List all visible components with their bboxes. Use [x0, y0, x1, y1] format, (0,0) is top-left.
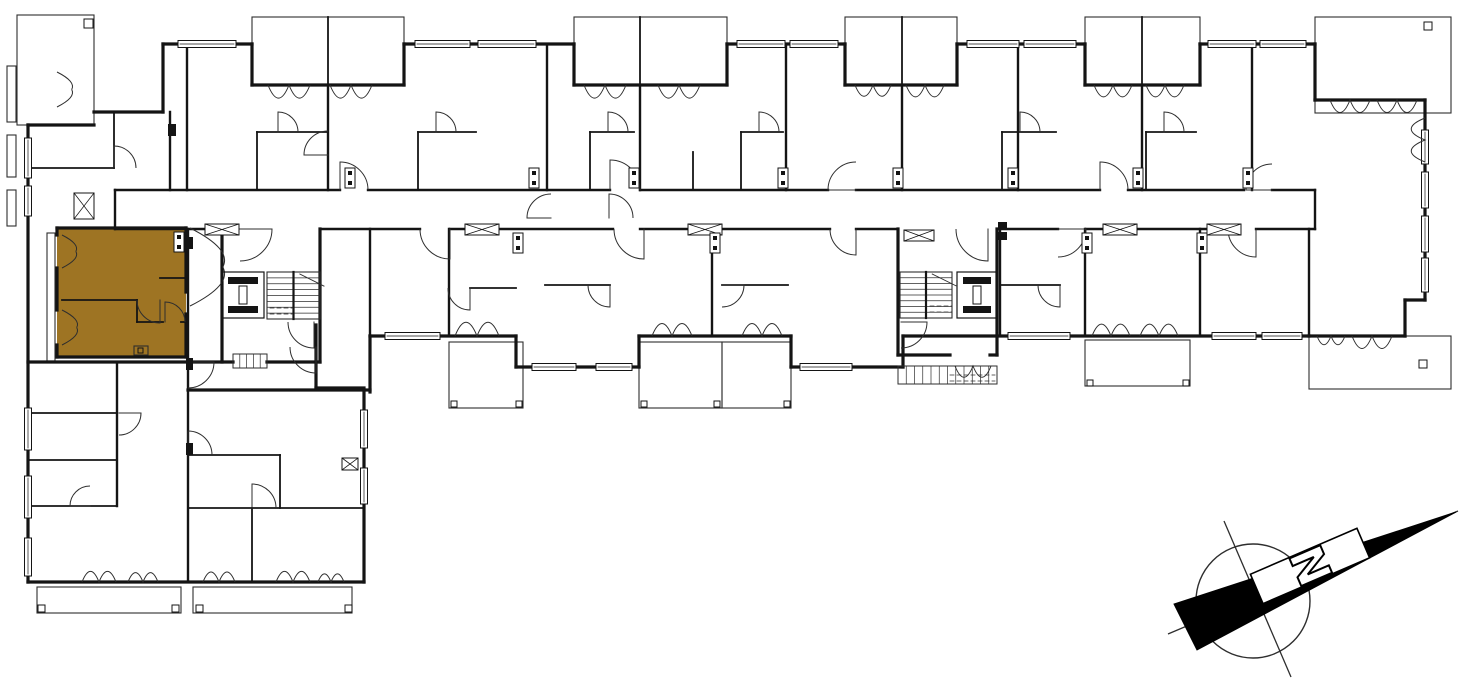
- balcony-door-swing: [658, 85, 700, 98]
- marker-square: [345, 605, 352, 612]
- door-frame-dot: [532, 171, 536, 175]
- door-frame-dot: [632, 181, 636, 185]
- plan-layers: [7, 15, 1451, 613]
- balcony-door-swing: [330, 85, 372, 98]
- marker-square: [451, 401, 457, 407]
- door-stop: [998, 232, 1007, 240]
- door-frame-dot: [516, 246, 520, 250]
- casement-swing: [57, 90, 73, 108]
- door-arc: [114, 146, 136, 168]
- door-frame-dot: [1246, 181, 1250, 185]
- door-arc: [608, 112, 628, 132]
- door-frame-dot: [713, 236, 717, 240]
- entrance-steps: [233, 354, 267, 368]
- balcony-outline: [1309, 336, 1451, 389]
- door-arc: [288, 322, 314, 348]
- walls-layer: [28, 17, 1425, 582]
- balcony-outline: [845, 17, 957, 85]
- door-arc: [448, 288, 470, 310]
- door-arc: [1164, 112, 1184, 132]
- door-arc: [1038, 285, 1060, 307]
- door-stop: [186, 443, 193, 455]
- balcony-door-swing: [1140, 324, 1178, 336]
- screenshot-root: N: [0, 0, 1465, 692]
- marker-square: [714, 401, 720, 407]
- balcony-outline: [449, 342, 523, 408]
- door-arc: [722, 285, 744, 307]
- floor-plan: N: [0, 0, 1465, 692]
- door-frame-dot: [348, 181, 352, 185]
- door-frame-dot: [348, 171, 352, 175]
- marker-square: [196, 605, 203, 612]
- balcony-outline: [7, 190, 16, 226]
- marker-square: [38, 605, 45, 612]
- door-frame-dot: [516, 236, 520, 240]
- door-frame-dot: [1200, 246, 1204, 250]
- balcony-door-swing: [906, 85, 944, 97]
- balcony-outline: [47, 233, 55, 361]
- door-arc: [527, 194, 551, 218]
- door-arc: [304, 131, 328, 155]
- door-frame-dot: [1011, 171, 1015, 175]
- balcony-door-swing: [584, 85, 626, 98]
- balcony-outline: [1085, 340, 1190, 386]
- door-frame-dot: [1085, 236, 1089, 240]
- door-arc: [119, 413, 141, 435]
- symbols-layer: [38, 19, 1432, 612]
- door-arc: [420, 229, 450, 259]
- door-arc: [588, 285, 610, 307]
- door-arc: [828, 162, 856, 190]
- door-stop: [998, 222, 1007, 230]
- balcony-door-swing: [1377, 100, 1417, 113]
- marker-square: [641, 401, 647, 407]
- elevator-door: [973, 286, 981, 304]
- balcony-door-swing: [268, 85, 310, 98]
- balcony-outline: [37, 587, 181, 613]
- marker-square: [1424, 22, 1432, 30]
- balcony-outline: [17, 15, 94, 125]
- marker-square: [84, 19, 93, 28]
- balcony-outline: [7, 66, 16, 122]
- door-stop: [168, 124, 176, 136]
- door-arc: [290, 347, 316, 373]
- door-frame-dot: [177, 245, 181, 249]
- balcony-door-swing: [1330, 100, 1370, 113]
- balcony-outline: [574, 17, 727, 85]
- door-frame-dot: [1136, 171, 1140, 175]
- door-frame-dot: [532, 181, 536, 185]
- balcony-outline: [193, 587, 352, 613]
- balcony-door-swing: [652, 324, 692, 337]
- casement-swing: [190, 267, 225, 306]
- balcony-door-swing: [742, 324, 782, 337]
- marker-square: [516, 401, 522, 407]
- door-frame-dot: [1011, 181, 1015, 185]
- marker-square: [1419, 360, 1427, 368]
- door-frame-dot: [896, 171, 900, 175]
- door-frame-dot: [1200, 236, 1204, 240]
- balcony-outline: [7, 135, 16, 177]
- elevator-bar: [228, 277, 258, 284]
- door-frame-dot: [896, 181, 900, 185]
- door-arc: [278, 112, 298, 132]
- balcony-door-swing: [855, 85, 891, 96]
- door-frame-dot: [781, 171, 785, 175]
- casement-swing: [57, 72, 73, 90]
- balcony-door-swing: [455, 322, 499, 336]
- door-stop: [186, 237, 193, 249]
- balcony-door-swing: [1094, 85, 1132, 97]
- door-arc: [830, 229, 856, 255]
- balcony-door-swing: [1092, 324, 1130, 336]
- balcony-outline: [639, 342, 722, 408]
- balcony-outline: [722, 342, 791, 408]
- elevator-bar: [228, 306, 258, 313]
- elevator-bar: [963, 277, 991, 284]
- door-arc: [1100, 162, 1128, 190]
- door-frame-dot: [1085, 246, 1089, 250]
- door-arc: [240, 229, 272, 261]
- door-arc: [759, 112, 779, 132]
- door-arc: [614, 229, 644, 259]
- door-frame-dot: [177, 235, 181, 239]
- door-frame-dot: [713, 246, 717, 250]
- marker-square: [1087, 380, 1093, 386]
- balcony-door-swing: [955, 366, 991, 377]
- elevator-door: [239, 286, 247, 304]
- door-arc: [70, 486, 90, 506]
- elevator-bar: [963, 306, 991, 313]
- door-arc: [1020, 112, 1040, 132]
- door-frame-dot: [781, 181, 785, 185]
- door-frame-dot: [1136, 181, 1140, 185]
- door-stop: [186, 358, 193, 370]
- balcony-door-swing: [1146, 85, 1184, 97]
- marker-square: [784, 401, 790, 407]
- door-arc: [956, 229, 988, 261]
- door-frame-dot: [632, 171, 636, 175]
- balcony-door-swing: [1352, 336, 1392, 349]
- door-arc: [436, 112, 456, 132]
- marker-square: [1183, 380, 1189, 386]
- door-arc: [609, 194, 633, 218]
- door-arc: [252, 484, 276, 508]
- north-compass: N: [1168, 511, 1458, 677]
- door-frame-dot: [1246, 171, 1250, 175]
- marker-square: [172, 605, 179, 612]
